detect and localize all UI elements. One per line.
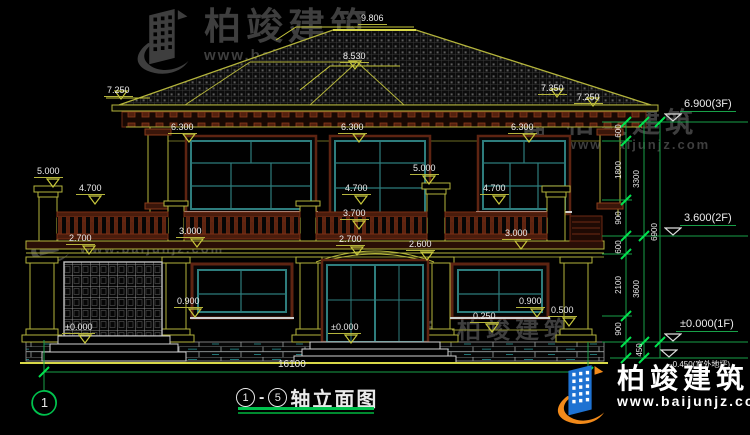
- chain-2100: 2100: [615, 276, 623, 294]
- dim-rail-right: 4.700: [480, 183, 509, 195]
- chain-900a: 900: [615, 211, 623, 224]
- title-axis-start: 1: [236, 388, 255, 407]
- dim-roof-apex: 9.806: [358, 13, 387, 25]
- dim-roof-ridge: 8.530: [340, 51, 369, 63]
- dim-post-right: 5.000: [410, 163, 439, 175]
- level-3f: 6.900(3F): [680, 98, 736, 112]
- axis-bubble-1: 1: [32, 390, 57, 415]
- dim-arch-left: 2.700: [66, 233, 95, 245]
- dim-sill-right: 0.900: [516, 296, 545, 308]
- brand-name: 柏竣建筑: [617, 364, 750, 393]
- dim-balcony-floor: 3.700: [340, 208, 369, 220]
- brand-url: www.baijunjz.com: [617, 393, 750, 409]
- dim-ridge-right: 7.350: [538, 83, 567, 95]
- chain-3300: 3300: [633, 170, 641, 188]
- building-swoosh-logo-icon: [552, 364, 610, 428]
- level-2f: 3.600(2F): [680, 212, 736, 226]
- level-1f: ±0.000(1F): [676, 318, 738, 332]
- chain-1800: 1800: [615, 161, 623, 179]
- dim-eave-right: 7.250: [574, 92, 603, 104]
- chain-3600: 3600: [633, 280, 641, 298]
- dim-rail-left: 4.700: [76, 183, 105, 195]
- roof: [112, 30, 658, 127]
- window-1f-left: [190, 264, 294, 318]
- brand-logo: 柏竣建筑 www.baijunjz.com: [552, 364, 750, 428]
- dim-plinth-edge: 0.500: [548, 305, 577, 317]
- dim-lintel2f-a: 6.300: [168, 122, 197, 134]
- dim-eave-left: 7.250: [104, 85, 133, 97]
- steps-left: [42, 336, 186, 361]
- dim-lintel2f-c: 6.300: [508, 122, 537, 134]
- dim-post-left: 5.000: [34, 166, 63, 178]
- cad-elevation-screenshot: 柏竣建筑 www.baijunjz.com 柏竣建筑 www.baijunjz.…: [0, 0, 750, 435]
- steps-center: [294, 342, 456, 363]
- dim-arch-center: 2.700: [336, 234, 365, 246]
- title-dash: -: [259, 389, 264, 407]
- dim-slab-right: 3.000: [502, 228, 531, 240]
- side-box: [570, 216, 602, 241]
- dim-slab-left: 3.000: [176, 226, 205, 238]
- chain-450: 450: [636, 343, 644, 356]
- dim-total-width: 16100: [278, 359, 306, 370]
- title-axis-end: 5: [268, 388, 287, 407]
- title-underline-thin: [238, 412, 374, 414]
- chain-600b: 600: [615, 240, 623, 253]
- dim-rail-center: 4.700: [342, 183, 371, 195]
- chain-6900: 6900: [651, 223, 659, 241]
- dim-lintel2f-b: 6.300: [338, 122, 367, 134]
- dim-sill-left: 0.900: [174, 296, 203, 308]
- chain-600a: 600: [615, 124, 623, 137]
- chain-900b: 900: [615, 322, 623, 335]
- dim-plinth-right: 0.250: [470, 311, 499, 323]
- balcony-door: [330, 136, 430, 216]
- title-underline-thick: [238, 407, 374, 410]
- dim-zero-left: ±0.000: [62, 322, 95, 334]
- dim-spring-right: 2.600: [406, 239, 435, 251]
- dim-zero-center: ±0.000: [328, 322, 361, 334]
